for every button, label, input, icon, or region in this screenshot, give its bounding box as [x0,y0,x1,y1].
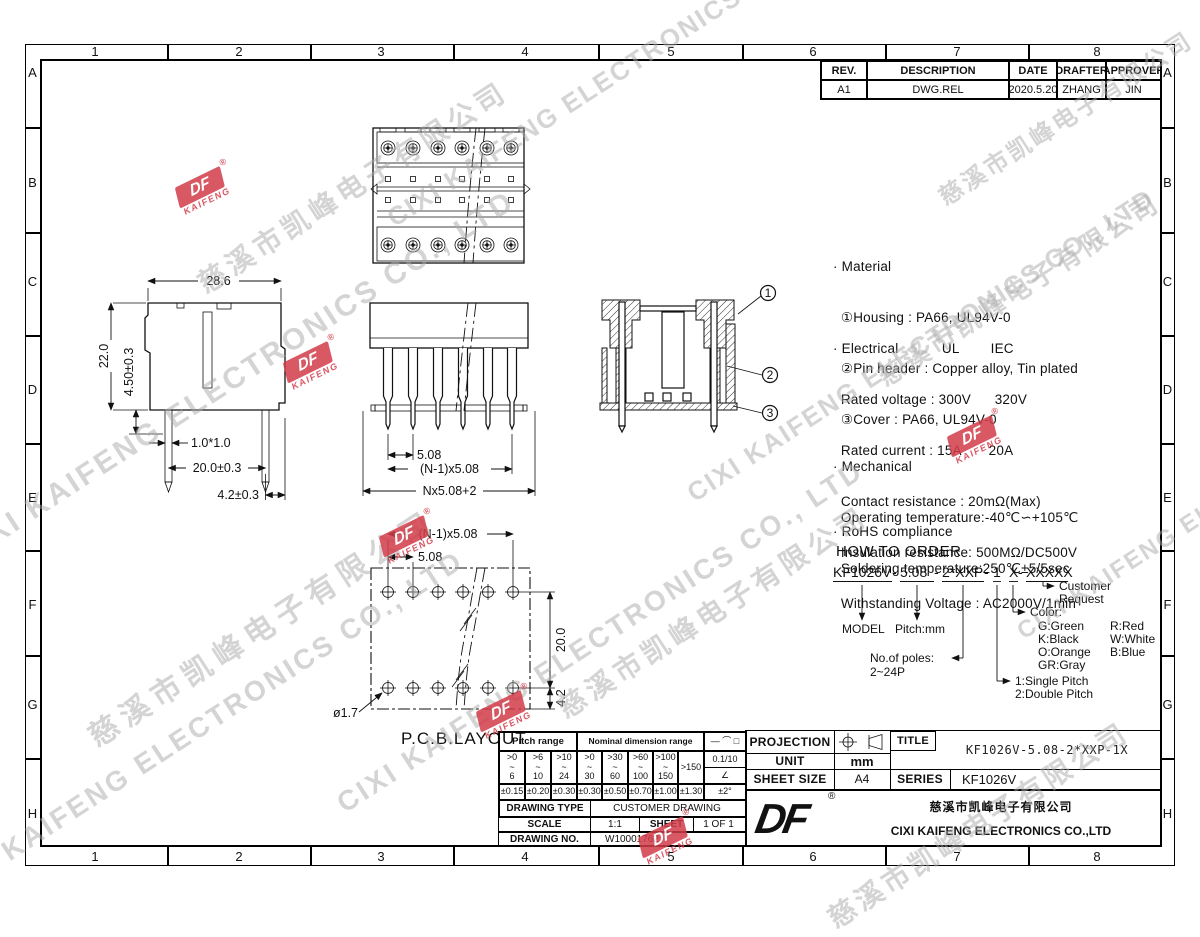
poles-label: No.of poles: [870,651,934,665]
zone-tick [25,232,40,234]
zone-tick [25,127,40,129]
sheet-size-value: A4 [834,769,890,789]
svg-text:W:White: W:White [1110,632,1155,646]
drawing-type-label: DRAWING TYPE [499,800,591,817]
drawing-type-value: CUSTOMER DRAWING [591,800,743,817]
model-label: MODEL [842,622,885,636]
nominal-tol: ±1.00 [653,784,678,800]
order-labels: MODEL Pitch:mm No.of poles: 2~24P 1:Sing… [842,579,1155,701]
angle-symbol: ∠ [705,768,745,783]
rev-header: REV. [821,61,867,80]
title-label: TITLE [890,731,936,751]
zone-col-bottom: 7 [947,848,967,864]
svg-text:-: - [1018,564,1023,580]
solder-pins [165,410,269,492]
nominal-range-cell: >100~150 [653,751,678,784]
callout-1: 1 [765,286,772,300]
scale-label: SCALE [499,817,591,832]
screw-row-bottom [381,238,518,252]
svg-text:-: - [934,564,939,580]
housing-front [370,303,528,348]
zone-tick [310,845,312,865]
order-code: KF1026V - 5.08 - 2*XXP - 1 X - XXXXX [833,564,1073,580]
code-pitch: 5.08 [900,564,927,580]
revision-table: REV. DESCRIPTION DATE DRAFTER APPROVER A… [820,60,1162,100]
zone-row-left: B [25,174,40,190]
zone-col-top: 3 [371,44,391,59]
nominal-range-header: Nominal dimension range [577,732,704,751]
drawing-no-value: W10001762 [591,832,743,846]
dim-row-pitch: 20.0±0.3 [193,461,242,475]
sheet-value: 1 OF 1 [694,817,743,832]
svg-text:-: - [892,564,897,580]
rev-cell: 2020.5.20 [1009,80,1057,99]
pitch-tol: ±0.15 [499,784,525,800]
zone-row-left: G [25,696,40,712]
pcb-holes [380,584,521,696]
poles-range: 2~24P [870,665,905,679]
zone-row-right: B [1160,174,1175,190]
color-label: Color: [1030,605,1062,619]
zone-col-bottom: 4 [515,848,535,864]
zone-col-bottom: 3 [371,848,391,864]
title-block: PROJECTION UNIT mm SHEET SIZE A4 TITLE K… [745,730,1162,847]
zone-col-top: 7 [947,44,967,59]
zone-tick [310,44,312,59]
sheet-size-label: SHEET SIZE [746,769,834,789]
pcb-layout-drawing: (N-1)x5.08 5.08 20.0 4.2 ø1.7 P.C.B.LAYO… [325,520,573,755]
pitch-type-1: 1:Single Pitch [1015,674,1088,688]
drawing-no-label: DRAWING NO. [499,832,591,846]
zone-tick [25,655,40,657]
title-value: KF1026V-5.08-2*XXP-1X [936,733,1158,767]
zone-tick [598,44,600,59]
dim-pcb-row: 20.0 [554,628,568,652]
zone-tick [25,443,40,445]
pitch-tol: ±0.20 [525,784,551,800]
zone-tick [1028,845,1030,865]
zone-row-right: H [1160,805,1175,821]
svg-text:O:Orange: O:Orange [1038,645,1091,659]
note-line: · Electrical UL IEC [833,340,1077,357]
dim-hole-dia: ø1.7 [333,706,358,720]
sheet-label: SHEET [639,817,694,832]
angle-tol: ±2° [704,784,746,800]
nominal-range-cell: >60~100 [628,751,653,784]
how-to-order-heading: HOW TO ORDER [836,543,961,560]
callout-2: 2 [767,368,774,382]
rev-header: DRAFTER [1057,61,1106,80]
dim-height: 22.0 [97,344,111,368]
zone-row-left: A [25,64,40,80]
registered-mark: ® [828,791,835,802]
pitch-range-cell: >6~10 [525,751,551,784]
section-view-drawing: 1 2 3 [588,276,798,436]
zone-tick [453,44,455,59]
nominal-tol: ±0.30 [577,784,602,800]
top-view-drawing [355,110,535,270]
nominal-tol: ±1.30 [678,784,704,800]
nominal-range-cell: >0~30 [577,751,602,784]
chamfer-angle-cell: 0.1/10 ∠ [704,751,746,784]
zone-tick [742,44,744,59]
zone-tick [1160,758,1175,760]
zone-tick [25,335,40,337]
zone-tick [885,44,887,59]
center-post [662,312,684,388]
code-model: KF1026V [833,564,892,580]
zone-tick [1160,655,1175,657]
tolerance-table: Pitch range Nominal dimension range — ⌒ … [498,731,747,801]
unit-label: UNIT [746,753,834,769]
customer-label-1: Customer [1059,579,1111,593]
rev-cell: A1 [821,80,867,99]
front-view-drawing: 5.08 (N-1)x5.08 Nx5.08+2 [356,276,584,516]
zone-tick [742,845,744,865]
zone-col-bottom: 8 [1087,848,1107,864]
wire-ports-row2 [386,198,514,203]
code-pitch-type: 1 [993,564,1001,580]
unit-value: mm [834,753,890,769]
callout-3: 3 [767,406,774,420]
zone-col-bottom: 1 [85,848,105,864]
projection-symbol-icon [836,732,888,752]
zone-row-right: F [1160,596,1175,612]
zone-tick [1160,232,1175,234]
svg-text:B:Blue: B:Blue [1110,645,1146,659]
dim-pin-length: 4.50±0.3 [122,348,136,397]
dim-pcb-total-pitch: (N-1)x5.08 [418,527,477,541]
series-value: KF1026V [950,769,1173,789]
zone-row-left: F [25,596,40,612]
pitch-type-2: 2:Double Pitch [1015,687,1093,701]
latch-right [524,184,530,194]
zone-tick [1160,443,1175,445]
svg-text:R:Red: R:Red [1110,619,1144,633]
center-slot [203,312,212,388]
pitch-tol: ±0.30 [551,784,577,800]
drawing-no-row: DRAWING NO. W10001762 [498,831,747,847]
rev-cell: DWG.REL [867,80,1009,99]
company-name-en: CIXI KAIFENG ELECTRONICS CO.,LTD [841,821,1161,841]
zone-tick [885,845,887,865]
rev-header: DATE [1009,61,1057,80]
nominal-tol: ±0.70 [628,784,653,800]
rev-header: DESCRIPTION [867,61,1009,80]
zone-row-right: G [1160,696,1175,712]
wire-ports-row1 [386,177,514,182]
zone-tick [167,44,169,59]
pitch-range-header: Pitch range [499,732,577,751]
note-line: · Material [833,258,1078,275]
zone-col-bottom: 6 [803,848,823,864]
zone-tick [167,845,169,865]
zone-row-left: C [25,273,40,289]
zone-tick [1028,44,1030,59]
dim-total-pitch: (N-1)x5.08 [420,462,479,476]
pitch-range-cell: >10~24 [551,751,577,784]
code-customer: XXXXX [1026,564,1073,580]
rev-header: APPROVER [1106,61,1161,80]
dim-pitch: 5.08 [417,448,441,462]
zone-col-top: 2 [229,44,249,59]
series-label: SERIES [890,769,950,789]
company-name-cn: 慈溪市凯峰电子有限公司 [841,791,1161,821]
zone-col-top: 8 [1087,44,1107,59]
header-pins [384,348,517,429]
dim-width: 28.6 [206,274,230,288]
zone-tick [25,758,40,760]
housing-profile [145,303,285,410]
how-to-order: HOW TO ORDER KF1026V - 5.08 - 2*XXP - 1 … [826,536,1160,708]
base-plate [375,405,523,411]
zone-row-right: D [1160,381,1175,397]
latch-left [371,184,377,194]
over-range-cell: >150 [678,751,704,784]
zone-row-left: E [25,489,40,505]
projection-label: PROJECTION [746,731,834,753]
company-logo: DF [752,799,809,839]
zone-row-left: D [25,381,40,397]
zone-tick [1160,127,1175,129]
pitch-label: Pitch:mm [895,622,945,636]
svg-text:G:Green: G:Green [1038,619,1084,633]
nominal-range-cell: >30~60 [602,751,628,784]
zone-tick [453,845,455,865]
screw-row-top [381,141,518,155]
zone-row-left: H [25,805,40,821]
svg-text:K:Black: K:Black [1038,632,1080,646]
note-line: Rated voltage : 300V 320V [833,391,1077,408]
zone-tick [1160,550,1175,552]
side-view-drawing: 28.6 22.0 4.50±0.3 1.0*1.0 20.0±0.3 4.2±… [93,268,315,508]
zone-col-top: 6 [803,44,823,59]
zone-tick [1160,335,1175,337]
zone-row-right: C [1160,273,1175,289]
chamfer-value: 0.1/10 [705,752,745,768]
rev-cell: ZHANG [1057,80,1106,99]
svg-text:GR:Gray: GR:Gray [1038,658,1085,672]
rev-cell: JIN [1106,80,1161,99]
svg-text:-: - [984,564,989,580]
zone-row-right: A [1160,64,1175,80]
zone-row-right: E [1160,489,1175,505]
nominal-tol: ±0.50 [602,784,628,800]
geometry-symbols: — ⌒ □ [704,732,746,751]
dim-pin-square: 1.0*1.0 [191,436,231,450]
zone-col-top: 5 [661,44,681,59]
dim-pcb-pitch: 5.08 [418,550,442,564]
zone-col-bottom: 2 [229,848,249,864]
code-poles: 2*XXP [942,564,983,580]
zone-tick [25,550,40,552]
pitch-range-cell: >0~6 [499,751,525,784]
zone-col-top: 1 [85,44,105,59]
note-line: · Mechanical [833,458,1078,475]
scale-value: 1:1 [591,817,639,832]
dim-overall: Nx5.08+2 [423,484,477,498]
dim-pcb-edge: 4.2 [554,689,568,706]
customer-label-2: Request [1059,592,1104,606]
dim-edge: 4.2±0.3 [217,488,259,502]
zone-tick [598,845,600,865]
zone-col-top: 4 [515,44,535,59]
zone-col-bottom: 5 [661,848,681,864]
